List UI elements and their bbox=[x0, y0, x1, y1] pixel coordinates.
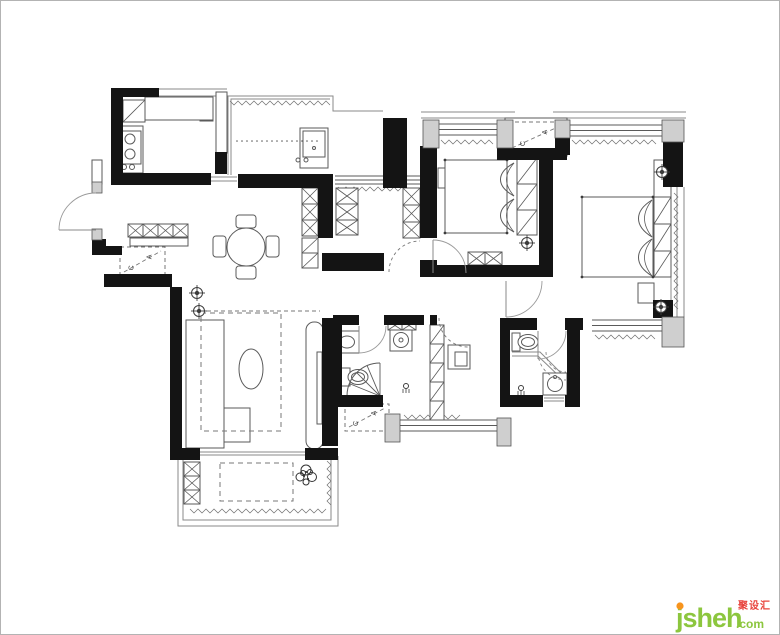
wall-segment bbox=[384, 315, 424, 325]
wall-segment bbox=[383, 118, 407, 188]
kitchen-glass-door bbox=[216, 92, 227, 153]
stove-knob bbox=[130, 165, 135, 170]
ac-unit-box bbox=[345, 404, 389, 431]
hanger-dot bbox=[301, 140, 303, 142]
sill-hatch bbox=[190, 509, 326, 513]
pantry-tap-dot bbox=[296, 158, 300, 162]
master-tv-bench bbox=[638, 283, 654, 303]
wall-segment bbox=[170, 287, 182, 455]
desk-chair bbox=[455, 352, 467, 366]
master-door-arc bbox=[506, 281, 542, 317]
wall-segment bbox=[318, 188, 333, 238]
plant-icon bbox=[303, 475, 305, 477]
wall-segment bbox=[238, 174, 333, 188]
watermark-logo: 聚设汇jsheh.com bbox=[675, 599, 771, 633]
wall-segment bbox=[333, 395, 383, 407]
bath1-door-arc bbox=[359, 326, 386, 353]
pantry-tap-dot bbox=[304, 158, 308, 162]
ac-letter-c: C bbox=[520, 141, 527, 146]
shower-head-icon bbox=[519, 386, 524, 391]
sill-hatch bbox=[595, 335, 655, 339]
wall-segment bbox=[500, 395, 543, 407]
hanger-dot bbox=[286, 140, 288, 142]
wall-segment bbox=[104, 274, 172, 287]
hanger-dot bbox=[281, 140, 283, 142]
pillow bbox=[507, 163, 515, 196]
plant-icon bbox=[296, 473, 304, 481]
plant-icon bbox=[307, 478, 309, 480]
tv bbox=[317, 352, 322, 424]
bed-corner-dot bbox=[581, 276, 584, 279]
wall-pillar bbox=[385, 414, 400, 442]
bed-corner-dot bbox=[444, 159, 447, 162]
hanger-dot bbox=[241, 140, 243, 142]
hanger-dot bbox=[256, 140, 258, 142]
wall-segment bbox=[322, 253, 384, 271]
sill-hatch bbox=[572, 140, 656, 144]
wall-pillar bbox=[497, 418, 511, 446]
shower-head-icon bbox=[404, 384, 409, 389]
wall-segment bbox=[539, 155, 553, 277]
dining-chair bbox=[236, 215, 256, 228]
hanger-dot bbox=[261, 140, 263, 142]
coffee-table bbox=[239, 349, 263, 389]
wall-pillar bbox=[662, 120, 684, 142]
shower2-arc bbox=[546, 352, 566, 372]
bed-corner-dot bbox=[652, 196, 655, 199]
wall-segment bbox=[497, 148, 567, 160]
wall-segment bbox=[420, 146, 437, 238]
wall-segment bbox=[305, 448, 338, 460]
watermark-orange-dot bbox=[676, 602, 683, 609]
sill-hatch bbox=[441, 140, 493, 144]
closet-door-arc bbox=[389, 241, 420, 272]
dining-chair bbox=[236, 266, 256, 279]
wall-segment bbox=[111, 88, 123, 174]
pillow bbox=[507, 199, 515, 232]
stove-burner bbox=[125, 134, 135, 144]
wall-segment bbox=[333, 315, 359, 325]
wall-pillar bbox=[662, 317, 684, 347]
ac-letter-c: C bbox=[129, 265, 136, 270]
bed-corner-dot bbox=[506, 232, 509, 235]
wall-segment bbox=[500, 318, 510, 407]
wall-segment bbox=[92, 246, 122, 255]
bed-corner-dot bbox=[652, 276, 655, 279]
washer-center bbox=[399, 338, 403, 342]
hanger-dot bbox=[266, 140, 268, 142]
wall-segment bbox=[437, 265, 540, 277]
ac-letter-c: C bbox=[353, 421, 360, 426]
wall-pillar bbox=[497, 120, 513, 148]
dining-chair bbox=[213, 236, 226, 257]
bedside-shelf bbox=[438, 168, 445, 188]
hanger-dot bbox=[316, 140, 318, 142]
hanger-dot bbox=[246, 140, 248, 142]
sill-hatch bbox=[327, 461, 331, 505]
bed-corner-dot bbox=[444, 232, 447, 235]
hanger-dot bbox=[306, 140, 308, 142]
stove-burner bbox=[125, 149, 135, 159]
wall-segment bbox=[430, 315, 437, 325]
bath2-toilet-seat bbox=[522, 338, 535, 347]
sofa-chaise bbox=[224, 408, 250, 442]
wall-segment bbox=[170, 448, 200, 460]
pantry-sink-basin bbox=[303, 131, 325, 157]
entry-console bbox=[130, 238, 188, 246]
ac-letter-a: A bbox=[542, 130, 549, 135]
dining-table bbox=[227, 228, 265, 266]
wall-segment bbox=[322, 318, 342, 402]
hanger-dot bbox=[291, 140, 293, 142]
sill-hatch bbox=[230, 101, 330, 105]
bed-small bbox=[445, 160, 507, 233]
wall-pillar bbox=[555, 120, 570, 138]
wall-segment bbox=[420, 260, 437, 277]
watermark-brand-text: jsheh bbox=[675, 603, 742, 633]
wall-pillar bbox=[423, 120, 439, 148]
wall-pillar bbox=[92, 182, 102, 193]
watermark-tld-text: .com bbox=[736, 617, 764, 631]
hanger-dot bbox=[236, 140, 238, 142]
thin-outline bbox=[178, 456, 338, 526]
ac-letter-a: A bbox=[371, 411, 378, 416]
wall-pillar bbox=[92, 229, 102, 240]
sofa bbox=[186, 320, 224, 448]
watermark-cn-text: 聚设汇 bbox=[737, 599, 771, 612]
bed-corner-dot bbox=[581, 196, 584, 199]
wall-segment bbox=[663, 140, 683, 187]
pantry-tap-dot bbox=[313, 147, 316, 150]
hanger-dot bbox=[276, 140, 278, 142]
hanger-dot bbox=[296, 140, 298, 142]
wall-segment bbox=[567, 328, 580, 407]
dining-chair bbox=[266, 236, 279, 257]
wall-segment bbox=[111, 173, 211, 185]
hanger-dot bbox=[311, 140, 313, 142]
floorplan-page: ACACAC聚设汇jsheh.com bbox=[0, 0, 780, 635]
balcony-mat bbox=[220, 463, 293, 501]
kitchen-counter-top bbox=[145, 97, 213, 120]
plant-icon bbox=[305, 471, 307, 473]
entry-door-arc bbox=[59, 193, 96, 230]
hanger-dot bbox=[271, 140, 273, 142]
floorplan-canvas: ACACAC聚设汇jsheh.com bbox=[0, 0, 780, 635]
entry-upper-wall bbox=[92, 160, 102, 184]
hanger-dot bbox=[251, 140, 253, 142]
bed-master bbox=[582, 197, 653, 277]
wall-segment bbox=[215, 152, 227, 174]
ac-letter-a: A bbox=[147, 254, 154, 259]
